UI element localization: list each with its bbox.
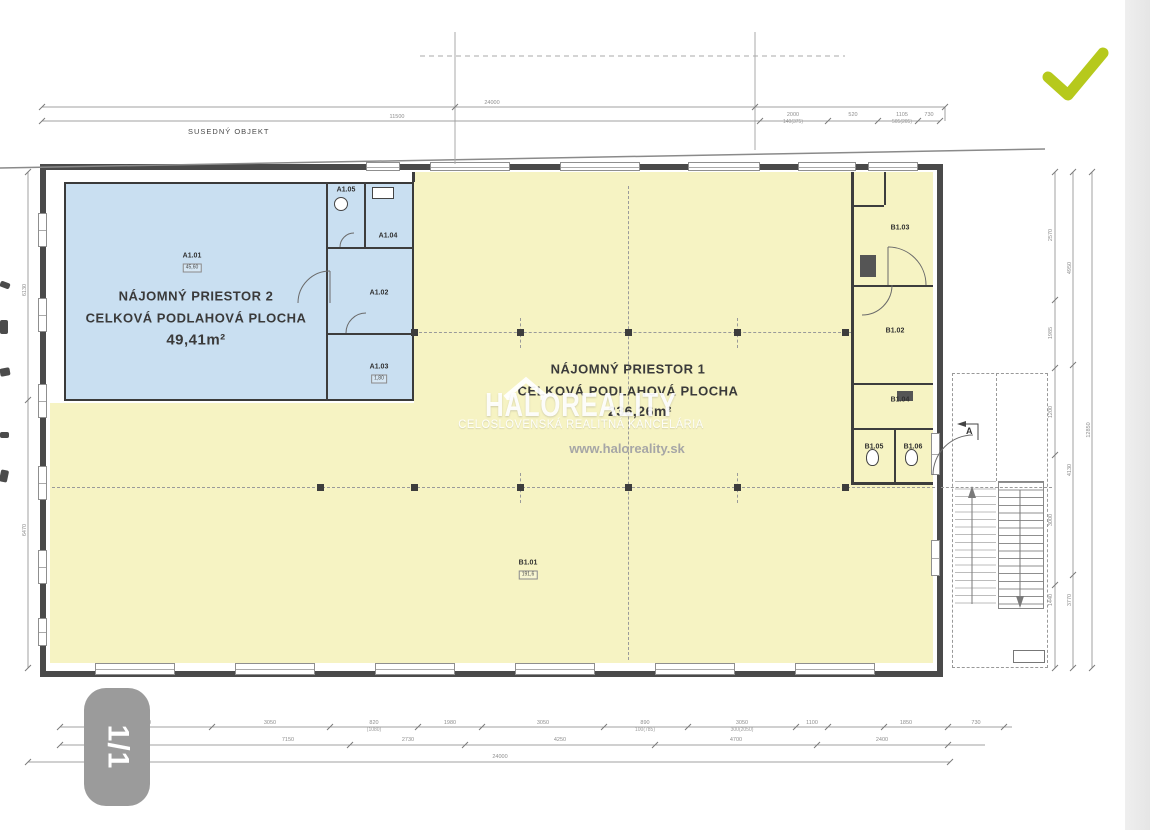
dim-bottom1: 1980 xyxy=(444,720,456,726)
cropped-left-text xyxy=(0,432,9,438)
dim-right: 1200 xyxy=(1048,406,1054,418)
space1-floor-area-left xyxy=(50,403,414,663)
column xyxy=(625,329,632,336)
dim-sub-bottom1: 300(2050) xyxy=(731,727,754,733)
neighbor-object-label: SUSEDNÝ OBJEKT xyxy=(188,127,270,136)
dim-bottom1: 3050 xyxy=(537,720,549,726)
window xyxy=(38,384,47,418)
dim-top: 520 xyxy=(848,112,857,118)
dim-tick xyxy=(1070,665,1076,671)
room-label-B1.02: B1.02 xyxy=(886,328,905,335)
dim-tick xyxy=(1052,169,1058,175)
cropped-left-text xyxy=(0,320,8,334)
window xyxy=(798,162,856,171)
dim-right: 1440 xyxy=(1048,594,1054,606)
interior-wall xyxy=(851,205,884,207)
space2-area: 49,41m² xyxy=(166,332,225,349)
dim-tick xyxy=(1052,452,1058,458)
interior-wall xyxy=(851,383,933,385)
dim-tick xyxy=(25,397,31,403)
dim-tick xyxy=(1052,365,1058,371)
window xyxy=(931,540,940,576)
dim-sub-top: 140(375) xyxy=(783,119,803,125)
dim-sub-bottom1: (1080) xyxy=(367,727,381,733)
window xyxy=(655,663,735,675)
column xyxy=(317,484,324,491)
axis-line xyxy=(628,186,629,660)
dim-bottom2: 2400 xyxy=(876,737,888,743)
dim-bottom3: 24000 xyxy=(492,754,507,760)
dim-tick xyxy=(209,724,215,730)
window xyxy=(95,663,175,675)
interior-wall xyxy=(851,285,933,287)
space1-title: NÁJOMNÝ PRIESTOR 1 xyxy=(551,362,706,377)
interior-wall xyxy=(364,182,366,247)
dim-tick xyxy=(945,724,951,730)
room-area-box-A1.01: 45,60 xyxy=(183,264,202,273)
dim-tick xyxy=(415,724,421,730)
dim-bottom1: 3050 xyxy=(264,720,276,726)
dim-tick xyxy=(1070,169,1076,175)
window xyxy=(38,618,47,646)
room-label-A1.01: A1.01 xyxy=(183,253,202,260)
column xyxy=(625,484,632,491)
dim-tick xyxy=(915,118,921,124)
dim-tick xyxy=(825,724,831,730)
dim-top: 730 xyxy=(924,112,933,118)
space1-area: 236,26m² xyxy=(608,403,672,419)
page-count-badge: 1/1 xyxy=(84,688,150,806)
dim-top: 24000 xyxy=(484,100,499,106)
dim-tick xyxy=(25,169,31,175)
dim-tick xyxy=(25,759,31,765)
space2-title: NÁJOMNÝ PRIESTOR 2 xyxy=(119,289,274,304)
toilet-fixture xyxy=(866,449,879,466)
page-count-label: 1/1 xyxy=(100,725,134,770)
dim-tick xyxy=(39,118,45,124)
dim-tick xyxy=(757,118,763,124)
dim-right: 12850 xyxy=(1086,422,1092,437)
dim-tick xyxy=(479,724,485,730)
dim-tick xyxy=(947,759,953,765)
dim-left: 6130 xyxy=(22,284,28,296)
column xyxy=(411,484,418,491)
space2-subtitle: CELKOVÁ PODLAHOVÁ PLOCHA xyxy=(86,311,307,326)
dim-right: 1985 xyxy=(1048,327,1054,339)
dim-tick xyxy=(1089,665,1095,671)
dim-tick xyxy=(57,742,63,748)
dim-bottom1: 1850 xyxy=(900,720,912,726)
room-label-A1.05: A1.05 xyxy=(337,187,356,194)
dim-sub-top: 505(205) xyxy=(892,119,912,125)
interior-wall xyxy=(851,172,854,482)
axis-line xyxy=(414,332,851,333)
viewer-edge-strip xyxy=(1125,0,1150,830)
dim-tick xyxy=(1070,362,1076,368)
interior-wall xyxy=(326,247,414,249)
interior-wall xyxy=(326,333,414,335)
dim-tick xyxy=(1089,169,1095,175)
window xyxy=(235,663,315,675)
dim-tick xyxy=(875,118,881,124)
window xyxy=(868,162,918,171)
column xyxy=(734,329,741,336)
room-label-A1.03: A1.03 xyxy=(370,364,389,371)
dim-bottom2: 7150 xyxy=(282,737,294,743)
stair-flight-right xyxy=(998,481,1044,609)
toilet-fixture xyxy=(905,449,918,466)
stair-axis xyxy=(996,373,997,481)
dim-tick xyxy=(347,742,353,748)
dim-tick xyxy=(1052,297,1058,303)
dim-tick xyxy=(601,724,607,730)
room-label-B1.04: B1.04 xyxy=(891,397,910,404)
dim-bottom2: 4250 xyxy=(554,737,566,743)
window xyxy=(688,162,760,171)
dim-tick xyxy=(652,742,658,748)
column xyxy=(517,484,524,491)
dim-bottom2: 4700 xyxy=(730,737,742,743)
sink-fixture xyxy=(372,187,394,199)
dim-left: 6470 xyxy=(22,524,28,536)
interior-wall xyxy=(326,182,328,401)
window xyxy=(366,162,400,171)
dim-bottom1: 730 xyxy=(971,720,980,726)
dim-tick xyxy=(39,104,45,110)
room-area-box-A1.03: 1,80 xyxy=(371,375,387,384)
dim-bottom1: 1100 xyxy=(806,720,818,726)
photo-viewer: SUSEDNÝ OBJEKT xyxy=(0,0,1150,830)
column xyxy=(734,484,741,491)
dim-tick xyxy=(685,724,691,730)
stair-base xyxy=(1013,650,1045,663)
interior-wall xyxy=(851,428,933,430)
dim-tick xyxy=(793,724,799,730)
room-label-A1.04: A1.04 xyxy=(379,233,398,240)
dim-tick xyxy=(25,665,31,671)
dim-tick xyxy=(327,724,333,730)
dim-tick xyxy=(942,104,948,110)
interior-wall xyxy=(894,428,896,482)
dim-bottom2: 2730 xyxy=(402,737,414,743)
interior-wall xyxy=(884,172,886,205)
column xyxy=(411,329,418,336)
space1-subtitle: CELKOVÁ PODLAHOVÁ PLOCHA xyxy=(518,384,739,399)
window xyxy=(38,466,47,500)
dim-tick xyxy=(752,104,758,110)
cropped-left-text xyxy=(0,280,11,289)
room-area-box-B1.01: 191,6 xyxy=(519,571,538,580)
dim-tick xyxy=(1052,582,1058,588)
column xyxy=(517,329,524,336)
dim-tick xyxy=(462,742,468,748)
room-label-B1.05: B1.05 xyxy=(865,444,884,451)
dim-tick xyxy=(1052,665,1058,671)
window xyxy=(38,213,47,247)
dim-bottom1: 3050 xyxy=(736,720,748,726)
column xyxy=(842,329,849,336)
window xyxy=(515,663,595,675)
dim-tick xyxy=(945,742,951,748)
door-opening xyxy=(931,433,940,475)
dim-tick xyxy=(814,742,820,748)
dim-bottom1: 820 xyxy=(369,720,378,726)
dim-tick xyxy=(452,104,458,110)
check-glow xyxy=(1028,28,1128,128)
dim-tick xyxy=(937,118,943,124)
dim-tick xyxy=(881,724,887,730)
dim-tick xyxy=(1001,724,1007,730)
dim-tick xyxy=(1070,572,1076,578)
sink-fixture xyxy=(860,255,876,277)
window xyxy=(375,663,455,675)
dim-right: 4130 xyxy=(1067,464,1073,476)
cropped-left-text xyxy=(0,367,11,377)
space1-floor-area xyxy=(414,172,933,663)
dim-right: 3770 xyxy=(1067,594,1073,606)
dim-bottom1: 890 xyxy=(640,720,649,726)
dim-tick xyxy=(57,724,63,730)
axis-line xyxy=(52,487,935,488)
dim-tick xyxy=(825,118,831,124)
dim-right: 4950 xyxy=(1067,262,1073,274)
dim-sub-bottom1: 100(785) xyxy=(635,727,655,733)
dim-top: 1105 xyxy=(896,112,908,118)
cropped-left-text xyxy=(0,469,9,482)
room-label-A1.02: A1.02 xyxy=(370,290,389,297)
interior-wall xyxy=(851,482,933,485)
column xyxy=(842,484,849,491)
window xyxy=(560,162,640,171)
window xyxy=(38,550,47,584)
room-label-B1.03: B1.03 xyxy=(891,225,910,232)
window xyxy=(38,298,47,332)
dim-top: 2000 xyxy=(787,112,799,118)
dim-right: 2570 xyxy=(1048,229,1054,241)
dim-top: 11500 xyxy=(390,114,405,120)
window xyxy=(430,162,510,171)
dim-right: 3000 xyxy=(1048,514,1054,526)
interior-wall xyxy=(412,172,415,182)
stair-flight-left xyxy=(955,481,996,609)
sink-fixture xyxy=(334,197,348,211)
window xyxy=(795,663,875,675)
room-label-B1.01: B1.01 xyxy=(519,560,538,567)
section-marker-a: A xyxy=(966,426,973,436)
room-label-B1.06: B1.06 xyxy=(904,444,923,451)
